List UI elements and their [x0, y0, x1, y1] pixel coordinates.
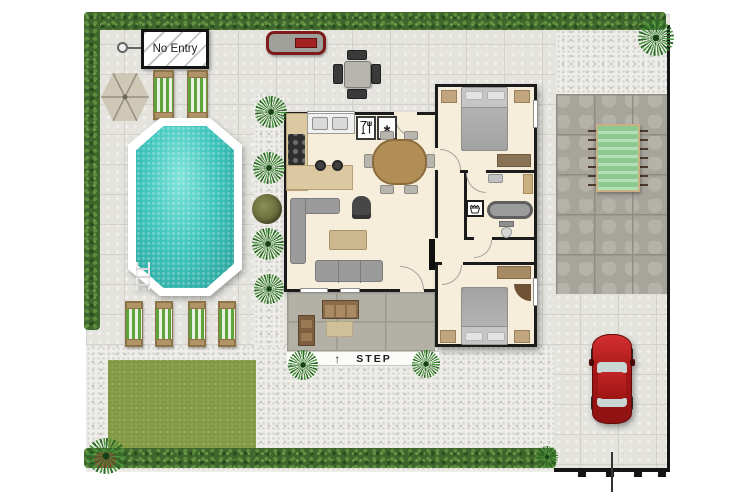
porch-doormat	[326, 321, 353, 337]
olive-bush	[252, 194, 282, 224]
duvet	[461, 287, 508, 327]
dining-chair	[380, 185, 394, 194]
step-label: STEP	[356, 353, 391, 365]
boundary-tick	[578, 472, 586, 477]
no-entry-label: No Entry	[153, 43, 198, 55]
bbq-hotplate	[295, 38, 317, 48]
porch-shelf	[298, 315, 315, 346]
wall	[486, 170, 537, 173]
nightstand	[514, 330, 530, 343]
sun-lounger	[155, 301, 173, 347]
car-roof	[598, 372, 626, 399]
nightstand	[440, 330, 456, 343]
dresser	[497, 154, 531, 167]
sun-lounger	[218, 301, 236, 347]
sun-lounger	[187, 70, 208, 120]
shelf-compartment	[301, 320, 312, 328]
gate-symbol-stem	[128, 47, 142, 49]
lounger-headrest	[156, 302, 172, 309]
corner-sofa	[290, 198, 306, 264]
nightstand	[514, 90, 530, 103]
plant	[536, 446, 558, 468]
plant	[288, 350, 318, 380]
gate-post-marker	[611, 452, 613, 492]
lounger-footrest	[189, 339, 205, 346]
window	[533, 100, 538, 128]
bar-stool	[332, 160, 343, 171]
boundary-line-right	[667, 25, 670, 472]
lounger-headrest	[189, 302, 205, 309]
lounger-headrest	[219, 302, 235, 309]
laundry-icon	[466, 200, 484, 217]
dining-chair	[404, 185, 418, 194]
hedge-top	[84, 12, 666, 30]
fireplace-stove	[352, 196, 371, 219]
boundary-tick	[658, 472, 666, 477]
pillow	[465, 91, 483, 100]
bench-seat	[336, 305, 345, 317]
wall	[435, 262, 438, 344]
plant	[253, 152, 285, 184]
sun-lounger	[153, 70, 174, 120]
wall	[492, 237, 537, 240]
plant	[252, 228, 284, 260]
bathtub-basin	[490, 204, 530, 216]
duvet	[461, 107, 508, 151]
wall	[463, 262, 537, 265]
wall	[435, 84, 438, 148]
no-entry-sign: No Entry	[141, 29, 209, 69]
lounger-footrest	[126, 339, 142, 346]
shelf-compartment	[301, 333, 312, 341]
boundary-tick	[634, 472, 642, 477]
pool-ladder	[136, 262, 152, 290]
pillow	[465, 332, 483, 341]
bathroom-cabinet	[523, 174, 533, 194]
plant	[412, 350, 440, 378]
lounger-footrest	[219, 339, 235, 346]
plant	[255, 96, 287, 128]
sofa-seam	[338, 261, 339, 283]
ladder-rung	[136, 284, 150, 286]
bathroom-sink	[488, 174, 503, 183]
outdoor-chair	[333, 64, 343, 84]
window	[300, 288, 328, 293]
bench-seat	[325, 305, 334, 317]
bbq-grill	[266, 31, 326, 55]
plant	[638, 20, 674, 56]
outdoor-dining-table	[344, 61, 371, 88]
wineglass-fork-glyph	[359, 120, 373, 136]
pillow	[487, 332, 505, 341]
site-plan: No Entry	[0, 0, 755, 504]
outdoor-chair	[371, 64, 381, 84]
sun-lounger	[125, 301, 143, 347]
sink-basin	[312, 117, 328, 130]
dishwasher-icon	[356, 116, 376, 140]
sink-basin	[332, 117, 348, 130]
sofa-seam	[360, 261, 361, 283]
ladder-rung	[136, 268, 150, 270]
lounger-footrest	[156, 339, 172, 346]
car-mirror	[630, 359, 635, 366]
hedge-left	[84, 12, 100, 330]
coffee-table	[329, 230, 367, 250]
bed	[461, 287, 508, 345]
washtub-glyph	[469, 203, 481, 214]
porch-bench	[322, 300, 359, 319]
lounger-headrest	[126, 302, 142, 309]
lounger-headrest	[154, 71, 173, 78]
car-mirror	[589, 359, 594, 366]
step-arrow-icon: ↑	[334, 352, 340, 366]
gate-symbol-icon	[117, 42, 128, 53]
sun-lounger	[188, 301, 206, 347]
pergola-table	[596, 124, 640, 192]
window	[533, 278, 538, 306]
wall	[435, 170, 438, 238]
swimming-pool	[128, 118, 242, 296]
car-rear-window	[597, 398, 627, 407]
pillow	[487, 91, 505, 100]
plant	[254, 274, 284, 304]
dresser	[497, 266, 531, 279]
sofa	[315, 260, 383, 282]
lawn	[108, 360, 256, 448]
nightstand	[441, 90, 457, 103]
outdoor-chair	[347, 89, 367, 99]
dining-chair	[426, 154, 435, 168]
bar-stool	[315, 160, 326, 171]
hedge-bottom	[84, 448, 556, 468]
bed	[461, 87, 508, 151]
plant	[86, 438, 126, 474]
bench-seat	[347, 305, 356, 317]
lounger-headrest	[188, 71, 207, 78]
window	[340, 288, 360, 293]
outdoor-chair	[347, 50, 367, 60]
bathtub	[487, 201, 533, 219]
cooktop	[288, 134, 305, 165]
car	[590, 332, 634, 426]
dining-table	[372, 139, 427, 185]
kitchen-sink	[307, 113, 355, 134]
wall	[464, 237, 474, 240]
tv	[429, 239, 435, 270]
ladder-rung	[136, 276, 150, 278]
